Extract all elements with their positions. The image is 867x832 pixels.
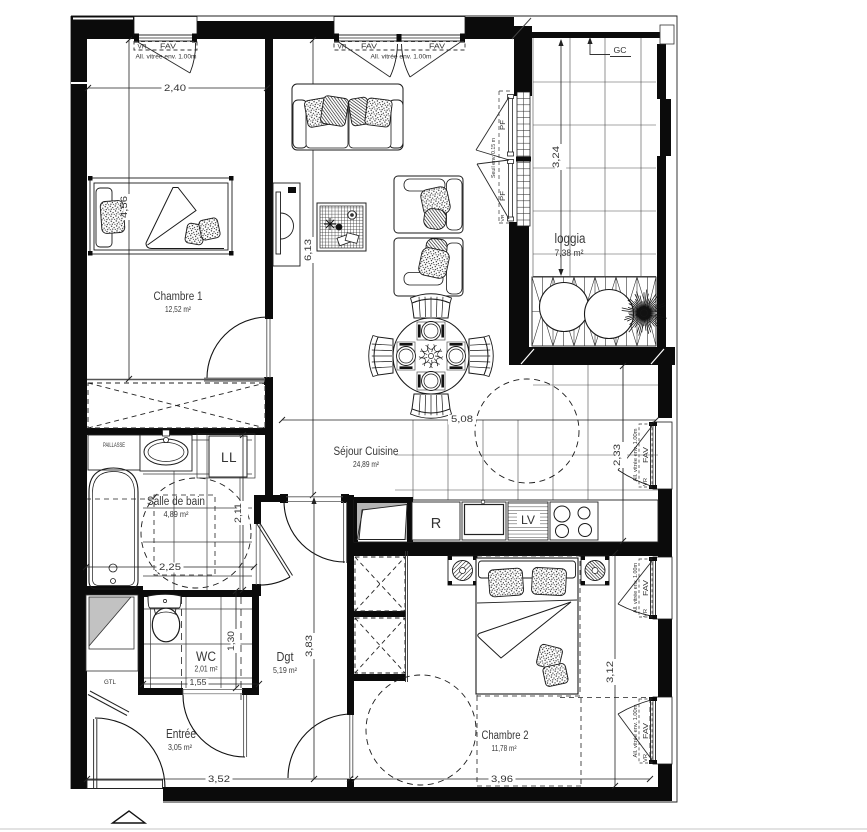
svg-text:7,38 m²: 7,38 m² <box>555 248 584 259</box>
svg-text:Chambre 1: Chambre 1 <box>154 291 203 303</box>
svg-text:Salle de bain: Salle de bain <box>147 496 205 508</box>
svg-text:2,25: 2,25 <box>159 562 181 573</box>
svg-text:VR: VR <box>338 45 348 51</box>
svg-text:2,11: 2,11 <box>233 503 244 523</box>
svg-text:3,12: 3,12 <box>605 661 616 683</box>
svg-text:FAV: FAV <box>361 42 377 51</box>
svg-text:2,01 m²: 2,01 m² <box>195 665 218 674</box>
svg-text:1,55: 1,55 <box>190 677 207 687</box>
svg-text:3,83: 3,83 <box>304 635 315 657</box>
svg-text:FAV: FAV <box>429 42 445 51</box>
svg-text:WC: WC <box>196 649 216 664</box>
svg-text:All. vitrée env. 1.00m: All. vitrée env. 1.00m <box>633 563 639 613</box>
svg-text:3,05 m²: 3,05 m² <box>168 743 192 752</box>
svg-text:GC: GC <box>614 45 627 55</box>
svg-text:PF: PF <box>500 120 507 130</box>
svg-text:2,40: 2,40 <box>164 83 186 94</box>
svg-text:All. vitrée env. 1.00m: All. vitrée env. 1.00m <box>371 54 432 61</box>
svg-text:Entrée: Entrée <box>166 727 196 741</box>
svg-text:FAV: FAV <box>641 723 650 739</box>
svg-text:3,96: 3,96 <box>491 774 513 785</box>
svg-text:1,30: 1,30 <box>226 631 236 651</box>
svg-text:GTL: GTL <box>104 679 116 686</box>
svg-text:Chambre 2: Chambre 2 <box>482 730 529 742</box>
svg-text:24,89 m²: 24,89 m² <box>353 460 379 469</box>
svg-text:PF: PF <box>500 191 507 201</box>
svg-text:3,24: 3,24 <box>551 146 562 168</box>
svg-text:LL: LL <box>221 449 237 465</box>
svg-text:LV: LV <box>521 515 535 527</box>
svg-text:11,78 m²: 11,78 m² <box>492 744 517 753</box>
svg-text:4,89 m²: 4,89 m² <box>164 510 189 519</box>
svg-text:VR: VR <box>500 214 505 222</box>
svg-text:All. vitrée env. 1.00m: All. vitrée env. 1.00m <box>633 704 639 757</box>
svg-text:5,08: 5,08 <box>451 414 473 425</box>
svg-text:4,56: 4,56 <box>119 196 130 218</box>
svg-text:FAV: FAV <box>160 42 176 51</box>
svg-text:FAV: FAV <box>641 580 650 596</box>
svg-text:Séjour Cuisine: Séjour Cuisine <box>334 446 399 458</box>
svg-text:R: R <box>431 516 441 532</box>
svg-text:2,33: 2,33 <box>612 444 623 466</box>
svg-text:VR: VR <box>643 609 649 617</box>
svg-text:5,19 m²: 5,19 m² <box>273 666 297 675</box>
svg-text:Seuil env. 0.15 m: Seuil env. 0.15 m <box>491 138 497 178</box>
svg-text:Dgt: Dgt <box>277 650 294 664</box>
svg-text:PAILLASSE: PAILLASSE <box>103 443 125 449</box>
svg-text:loggia: loggia <box>555 231 586 246</box>
svg-text:12,52 m²: 12,52 m² <box>165 305 191 314</box>
svg-text:All. vitrée env. 1.00m: All. vitrée env. 1.00m <box>136 54 197 61</box>
svg-text:6,13: 6,13 <box>303 239 314 261</box>
svg-text:VR: VR <box>138 45 148 51</box>
svg-text:3,52: 3,52 <box>208 774 230 785</box>
